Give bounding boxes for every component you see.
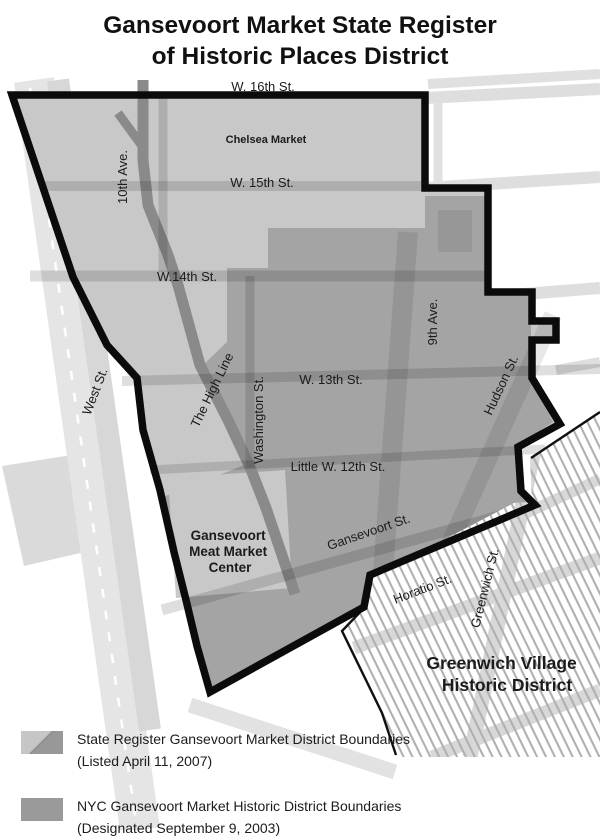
label-w14th: W.14th St. [157,269,217,284]
legend-line: (Listed April 11, 2007) [77,750,557,772]
legend-text: NYC Gansevoort Market Historic District … [77,795,557,839]
w16-east-band [425,89,600,98]
label-little-w12th: Little W. 12th St. [291,459,386,474]
legend-text: State Register Gansevoort Market Distric… [77,728,557,772]
label-10th-ave: 10th Ave. [115,150,130,204]
map-page: { "title": { "line1": "Gansevoort Market… [0,0,600,830]
label-w16th: W. 16th St. [231,79,295,94]
district-map: W. 16th St. W. 15th St. W.14th St. W. 13… [0,0,600,830]
legend-line: (Designated September 9, 2003) [77,817,557,839]
nyc-district-swatch [21,798,63,821]
dark-building-block [438,210,472,252]
label-chelsea-market: Chelsea Market [226,134,307,146]
label-9th-ave: 9th Ave. [425,299,440,346]
label-w13th: W. 13th St. [299,372,363,387]
state-register-swatch [21,731,63,754]
legend-line: NYC Gansevoort Market Historic District … [77,795,557,817]
street-band [428,74,600,84]
legend-line: State Register Gansevoort Market Distric… [77,728,557,750]
label-washington-st: Washington St. [251,376,266,464]
label-w15th: W. 15th St. [230,175,294,190]
